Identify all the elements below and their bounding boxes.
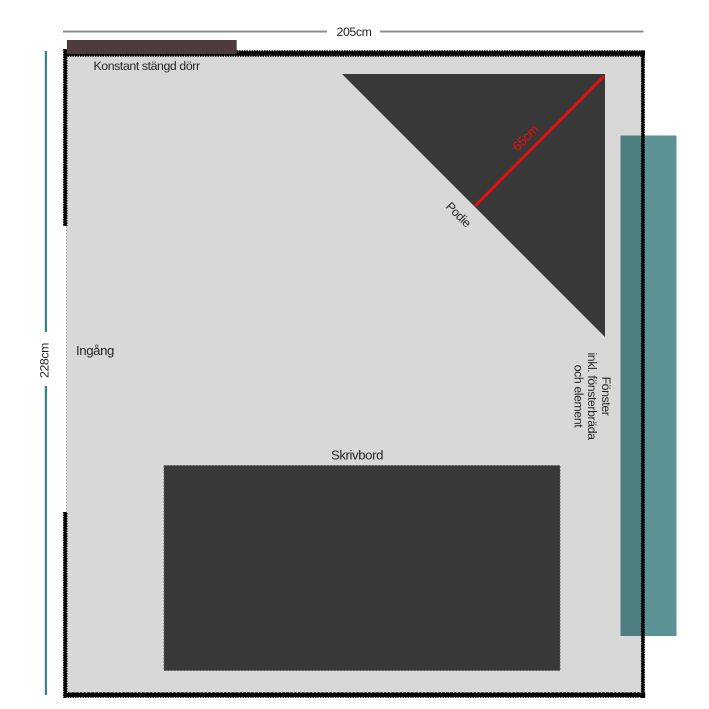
svg-text:och element: och element (571, 365, 585, 429)
svg-text:inkl. fönsterbräda: inkl. fönsterbräda (585, 352, 599, 440)
svg-text:205cm: 205cm (337, 25, 372, 39)
svg-text:228cm: 228cm (38, 343, 52, 378)
svg-text:Fönster: Fönster (599, 377, 613, 416)
svg-text:Konstant stängd dörr: Konstant stängd dörr (94, 59, 200, 73)
svg-text:Skrivbord: Skrivbord (331, 448, 383, 463)
svg-text:Ingång: Ingång (76, 343, 114, 358)
